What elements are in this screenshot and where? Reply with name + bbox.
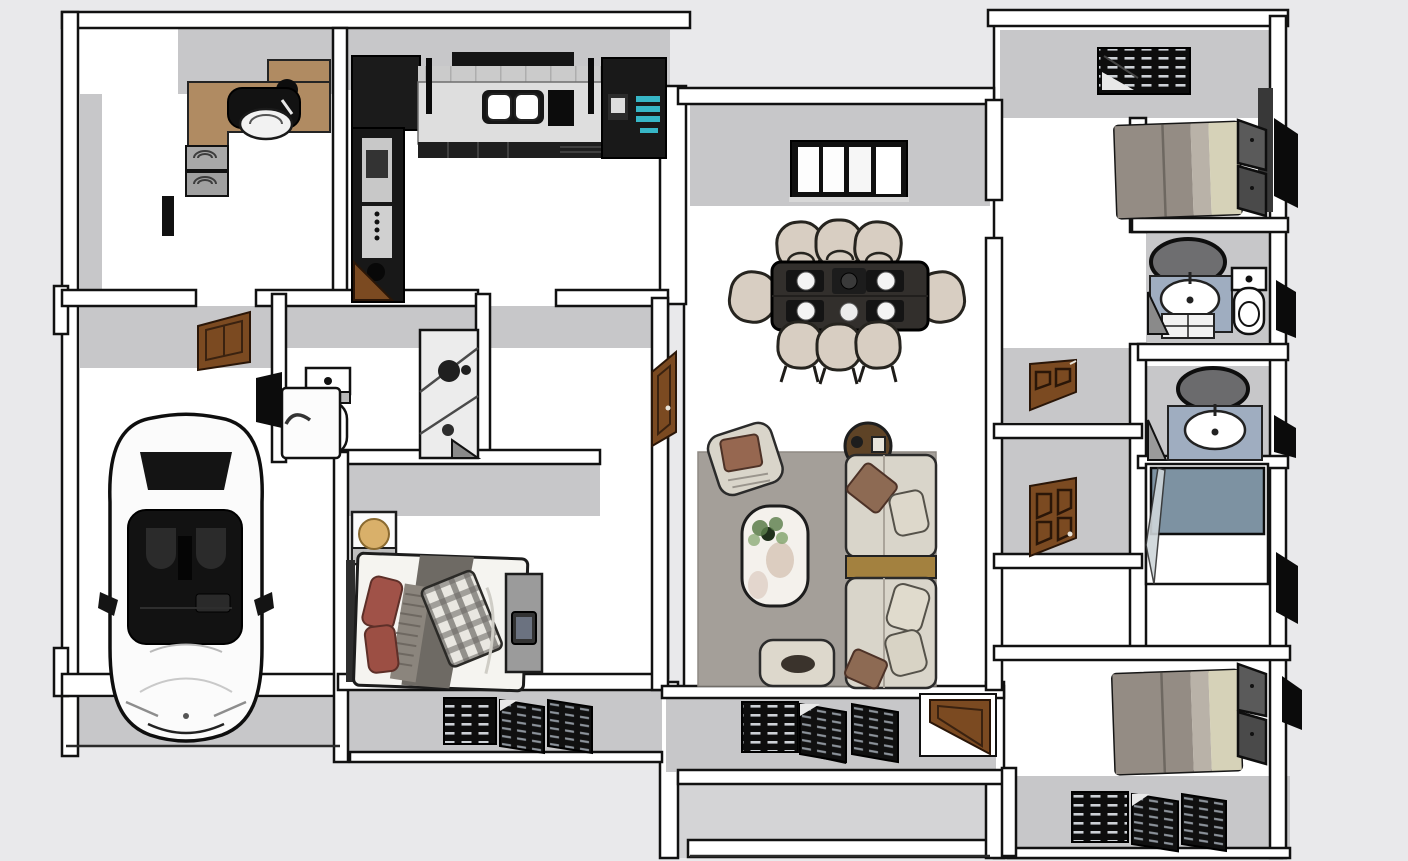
car-rear-window (140, 452, 232, 490)
floorplan-render (0, 0, 1408, 861)
fridge (602, 58, 666, 158)
living-room (698, 419, 936, 690)
corner-cabinet (352, 56, 420, 130)
desk-shelf (268, 60, 330, 82)
cooktop (548, 90, 574, 126)
ottoman (760, 640, 834, 686)
master-blanket (1114, 124, 1193, 219)
table-lamp (359, 519, 389, 549)
car (98, 414, 274, 741)
bathtub (282, 388, 340, 458)
master-sheet (1208, 122, 1241, 215)
floorplan-svg (0, 0, 1408, 861)
wall-art (162, 196, 174, 236)
oval-mirror-2 (1178, 368, 1248, 410)
double-sink (482, 90, 544, 124)
guest-headboard (1238, 664, 1266, 764)
lounge-chairs (186, 146, 228, 196)
master-shutter-window (1098, 48, 1190, 94)
dining-window (789, 141, 909, 202)
study-west-face (80, 94, 102, 294)
guest-shutters (1072, 792, 1226, 851)
bedroom-small-north-face (348, 460, 600, 516)
bedroom-small-shutters (444, 698, 592, 753)
office-chair (240, 109, 292, 139)
entry-door (920, 694, 996, 756)
dark-panel (256, 372, 282, 428)
foot-bench (506, 574, 542, 672)
sectional-sofa (843, 455, 936, 690)
counter-post-right (588, 58, 594, 114)
counter-post-left (426, 58, 432, 114)
bed-messy (353, 553, 528, 691)
vanity-1 (1148, 272, 1232, 338)
shower-enclosure (420, 330, 478, 458)
dining-table (772, 262, 928, 330)
red-pillow-2 (364, 624, 399, 673)
guest-blanket (1112, 672, 1193, 775)
marble-coffee-table (742, 506, 808, 606)
gold-console (846, 556, 936, 578)
shower-room (1146, 464, 1268, 584)
blue-shower-floor (1151, 468, 1264, 534)
toilet-2 (1232, 268, 1266, 334)
